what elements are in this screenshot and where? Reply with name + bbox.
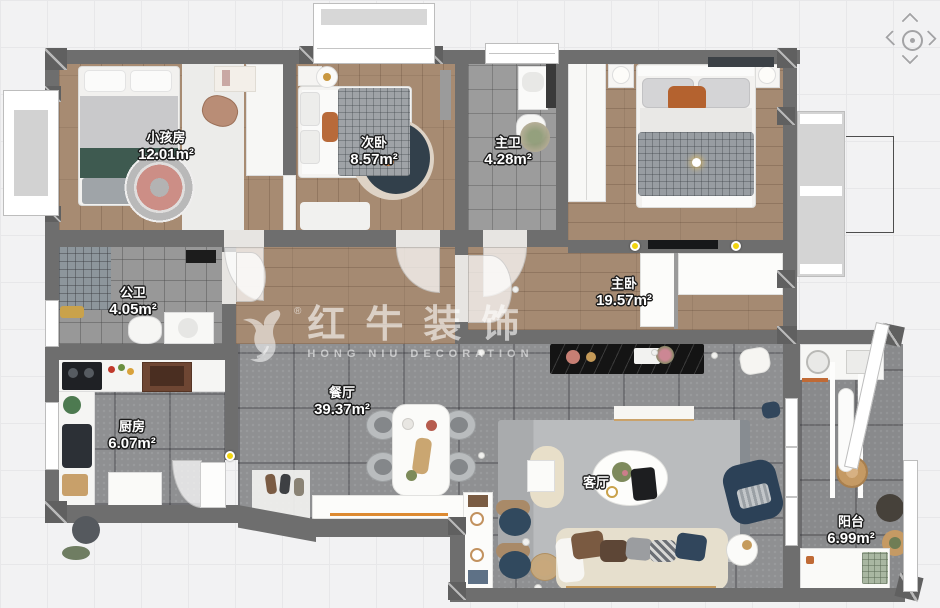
spotlight-marker <box>225 451 235 461</box>
master-bath-column <box>546 64 556 108</box>
chevron-down-icon <box>902 48 919 65</box>
shelf-books <box>468 495 488 507</box>
wall-living-bottom <box>450 588 800 602</box>
shoe-3 <box>294 478 304 496</box>
room-name: 公卫 <box>109 285 157 301</box>
downlight-marker <box>711 352 718 359</box>
bay-window-master-frame-mid <box>800 186 842 196</box>
dining-sideboard-accent <box>330 513 448 516</box>
downlight-marker <box>651 349 658 356</box>
kitchen-burner-2 <box>84 368 94 378</box>
room-label-dining: 餐厅 39.37m² <box>314 385 370 419</box>
pan-down-button[interactable] <box>903 51 917 65</box>
room-name: 阳台 <box>827 514 875 530</box>
kids-pillow-left <box>84 70 126 92</box>
master-closet-post <box>674 253 678 329</box>
kids-pillow-right <box>130 70 172 92</box>
master-tv-top[interactable] <box>708 57 774 67</box>
dining-chair-pad-1 <box>374 417 392 433</box>
dining-plate-2 <box>426 420 437 431</box>
dimension-line <box>893 136 894 233</box>
wall-corner <box>777 326 797 344</box>
dimension-line <box>846 232 894 233</box>
shelf-clock-1 <box>470 512 484 526</box>
room-name: 客厅 <box>583 475 609 491</box>
dining-chair-pad-2 <box>374 459 392 475</box>
room-area: 19.57m² <box>596 292 652 310</box>
wall-mid-bottom <box>455 330 900 344</box>
kitchen-pot-green <box>63 396 81 414</box>
dining-plate-1 <box>402 418 414 430</box>
bay-window-top-sill <box>321 9 427 25</box>
room-area: 39.37m² <box>314 401 370 419</box>
coffee-table-flower <box>622 470 628 476</box>
kitchen-cabinet-brown-inner <box>150 366 184 386</box>
downlight-marker <box>512 286 519 293</box>
door-opening-mbath <box>483 230 527 247</box>
bay-window-left-sill <box>14 110 48 196</box>
design-canvas[interactable]: ® 红牛装饰 HONG NIU DECORATION 小孩房 12.01m² 次… <box>0 0 940 608</box>
dining-chair-pad-4 <box>450 459 468 475</box>
sofa-pillow-pattern <box>650 540 676 562</box>
shelf-clock-2 <box>470 548 484 562</box>
shower-area <box>59 247 111 310</box>
room-label-master-bath: 主卫 4.28m² <box>484 135 532 169</box>
console-decor-pink <box>566 350 580 364</box>
sofa-pillow-darkbrown <box>600 540 628 562</box>
living-bench[interactable] <box>614 406 694 421</box>
wall-dining-bottom <box>310 519 465 537</box>
dining-plate-3 <box>406 470 417 481</box>
room-area: 4.05m² <box>109 301 157 319</box>
pan-left-button[interactable] <box>884 31 898 45</box>
wall-second-mbath <box>455 50 468 247</box>
window-living-balcony-mullion-2 <box>785 496 798 498</box>
side-table-cup <box>742 540 752 550</box>
master-sheet <box>640 108 752 134</box>
wall-kitchen-right <box>225 360 238 460</box>
dark-plant <box>876 494 904 522</box>
balcony-orange-item <box>806 556 814 564</box>
kids-dresser-decor <box>222 70 230 86</box>
kitchen-veg-amber <box>127 368 134 375</box>
master-headboard <box>638 66 754 76</box>
second-pillow-bottom <box>300 130 320 164</box>
room-label-balcony: 阳台 6.99m² <box>827 514 875 548</box>
kids-second-divider-cabinet <box>283 175 296 232</box>
wall-corner <box>448 582 466 600</box>
wall-balcony-bottom <box>800 588 905 602</box>
tan-stool <box>535 560 553 576</box>
second-accent-pillow <box>322 112 338 142</box>
room-name: 小孩房 <box>138 130 194 146</box>
master-bed-footer <box>642 196 752 207</box>
spotlight-marker <box>630 241 640 251</box>
spotlight-marker <box>731 241 741 251</box>
master-lamp-right <box>758 66 776 84</box>
second-radiator <box>440 70 451 120</box>
public-bath-toilet[interactable] <box>128 316 162 344</box>
room-name: 主卧 <box>596 276 652 292</box>
room-name: 次卧 <box>350 135 398 151</box>
kitchen-burner-1 <box>68 368 78 378</box>
kitchen-green-mat <box>62 546 90 560</box>
wall-corner <box>777 107 795 125</box>
master-lamp-left <box>612 66 630 84</box>
downlight-marker <box>478 452 485 459</box>
entry-chair-seat-2[interactable] <box>499 551 531 579</box>
chevron-left-icon <box>885 30 901 46</box>
room-area: 6.99m² <box>827 530 875 548</box>
window-top-mbath-line <box>489 53 555 54</box>
door-opening-master <box>455 255 468 322</box>
kitchen-veg-green <box>118 364 125 371</box>
floor-dot <box>522 538 530 546</box>
wall-bath-kitchen <box>45 344 238 360</box>
room-area: 6.07m² <box>108 435 156 453</box>
window-living-balcony <box>785 398 798 546</box>
balcony-counter-accent <box>802 378 828 382</box>
wall-right-upper <box>783 50 797 344</box>
shelf-photo <box>468 570 488 584</box>
green-check-basket <box>862 552 888 584</box>
wall-corner <box>45 501 67 523</box>
kids-dresser[interactable] <box>214 66 256 92</box>
kitchen-door-leaf <box>200 462 226 508</box>
round-side-table[interactable] <box>726 534 758 566</box>
public-bath-shelf <box>186 250 216 263</box>
wall-corner <box>448 517 466 535</box>
pan-up-button[interactable] <box>903 12 917 26</box>
bay-window-master-frame-bottom <box>800 264 842 274</box>
console-decor-tan <box>586 352 596 362</box>
wall-corner <box>777 48 797 68</box>
drying-rack-rail-left <box>830 362 835 498</box>
room-label-kids: 小孩房 12.01m² <box>138 130 194 164</box>
room-label-living: 客厅 <box>583 475 609 491</box>
kitchen-stool[interactable] <box>72 516 100 544</box>
door-swing-master <box>468 255 512 323</box>
console-flowers <box>656 346 674 364</box>
wall-mbath-master <box>556 50 568 247</box>
window-left-public-bath <box>45 300 59 347</box>
room-label-second: 次卧 8.57m² <box>350 135 398 169</box>
chevron-right-icon <box>921 30 937 46</box>
coffee-table-tray <box>630 467 657 501</box>
pan-control <box>884 8 940 68</box>
tan-plant-leaves <box>889 537 901 549</box>
downlight-marker <box>478 349 485 356</box>
kitchen-veg-red <box>108 366 115 373</box>
room-name: 餐厅 <box>314 385 370 401</box>
pan-right-button[interactable] <box>924 31 938 45</box>
room-name: 主卫 <box>484 135 532 151</box>
second-bench-rug <box>300 202 370 230</box>
master-closet-right[interactable] <box>678 253 783 295</box>
door-opening-kids <box>224 230 264 247</box>
public-bath-basin <box>178 318 198 338</box>
window-living-balcony-mullion-1 <box>785 446 798 448</box>
wall-corner <box>45 48 67 70</box>
sofa-pillow-navy <box>674 532 707 562</box>
wall-corner <box>777 270 795 288</box>
room-name: 厨房 <box>108 419 156 435</box>
dining-chair-pad-3 <box>450 417 468 433</box>
room-area: 12.01m² <box>138 146 194 164</box>
master-blanket-deco-dot <box>692 158 701 167</box>
master-wardrobe[interactable] <box>568 62 606 202</box>
door-swing-public-bath <box>236 252 266 302</box>
master-bath-basin <box>522 72 544 92</box>
master-tv-wall[interactable] <box>648 240 718 249</box>
washing-machine-door <box>806 350 830 374</box>
room-area: 4.28m² <box>484 151 532 169</box>
window-balcony-right <box>903 460 918 592</box>
second-lamp-center <box>323 73 331 81</box>
public-bath-towel <box>60 306 84 318</box>
room-label-kitchen: 厨房 6.07m² <box>108 419 156 453</box>
chevron-up-icon <box>902 13 919 30</box>
room-label-master: 主卧 19.57m² <box>596 276 652 310</box>
entry-chair-seat-1[interactable] <box>499 508 531 536</box>
kitchen-sink[interactable] <box>62 424 92 468</box>
magazine-rack <box>527 460 555 492</box>
wall-kids-second <box>283 64 296 175</box>
sofa-pillow-grey <box>625 537 653 561</box>
door-opening-second <box>396 230 440 247</box>
pan-center-button pan-center-icon[interactable] <box>902 30 923 51</box>
window-left-kitchen <box>45 402 59 470</box>
kitchen-fridge[interactable] <box>108 472 162 506</box>
bay-window-top-line <box>317 48 431 49</box>
room-label-public-bath: 公卫 4.05m² <box>109 285 157 319</box>
room-area: 8.57m² <box>350 151 398 169</box>
dimension-line <box>846 136 894 137</box>
second-pillow-top <box>300 92 320 126</box>
kitchen-cutting-board <box>62 474 88 496</box>
bay-window-master-frame-top <box>800 114 842 124</box>
master-wardrobe-line <box>586 64 587 200</box>
